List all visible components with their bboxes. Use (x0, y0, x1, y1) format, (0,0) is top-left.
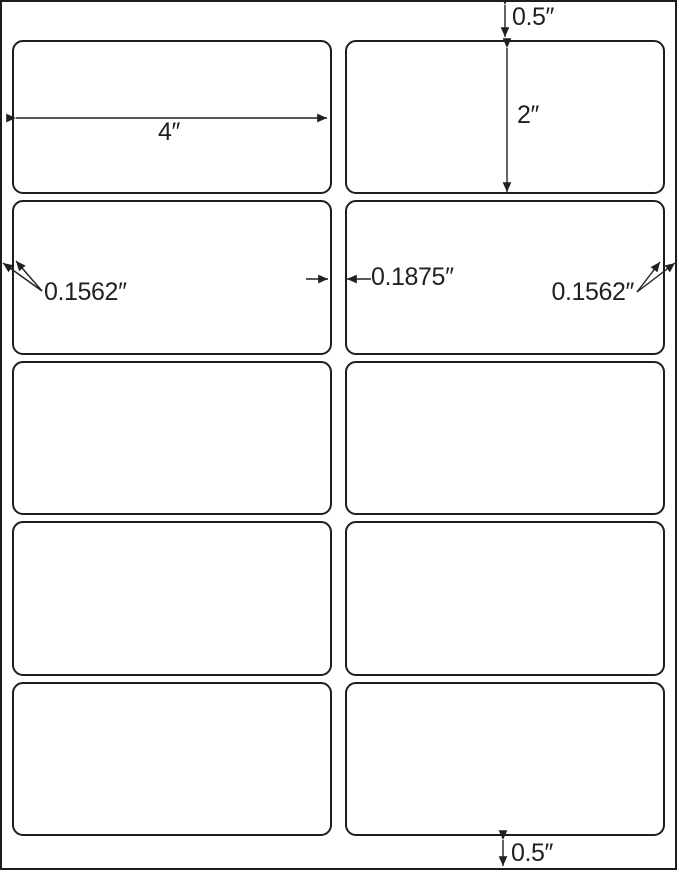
top-margin-dimension: 0.5″ (512, 4, 554, 32)
label-cell (12, 682, 332, 836)
bottom-margin-dimension: 0.5″ (511, 840, 553, 868)
label-template-diagram: 0.5″ 2″ 4″ 0.1562″ 0.1875″ 0.1562″ 0.5″ (0, 0, 679, 879)
column-gap-dimension: 0.1875″ (371, 264, 454, 292)
label-grid (12, 40, 665, 836)
label-cell (12, 361, 332, 515)
label-cell (345, 521, 665, 675)
label-height-dimension: 2″ (517, 102, 539, 130)
label-cell (345, 40, 665, 194)
label-cell (12, 521, 332, 675)
left-margin-dimension: 0.1562″ (44, 279, 127, 307)
label-width-dimension: 4″ (158, 119, 180, 147)
label-cell (345, 361, 665, 515)
right-margin-dimension: 0.1562″ (551, 279, 634, 307)
label-cell (345, 682, 665, 836)
